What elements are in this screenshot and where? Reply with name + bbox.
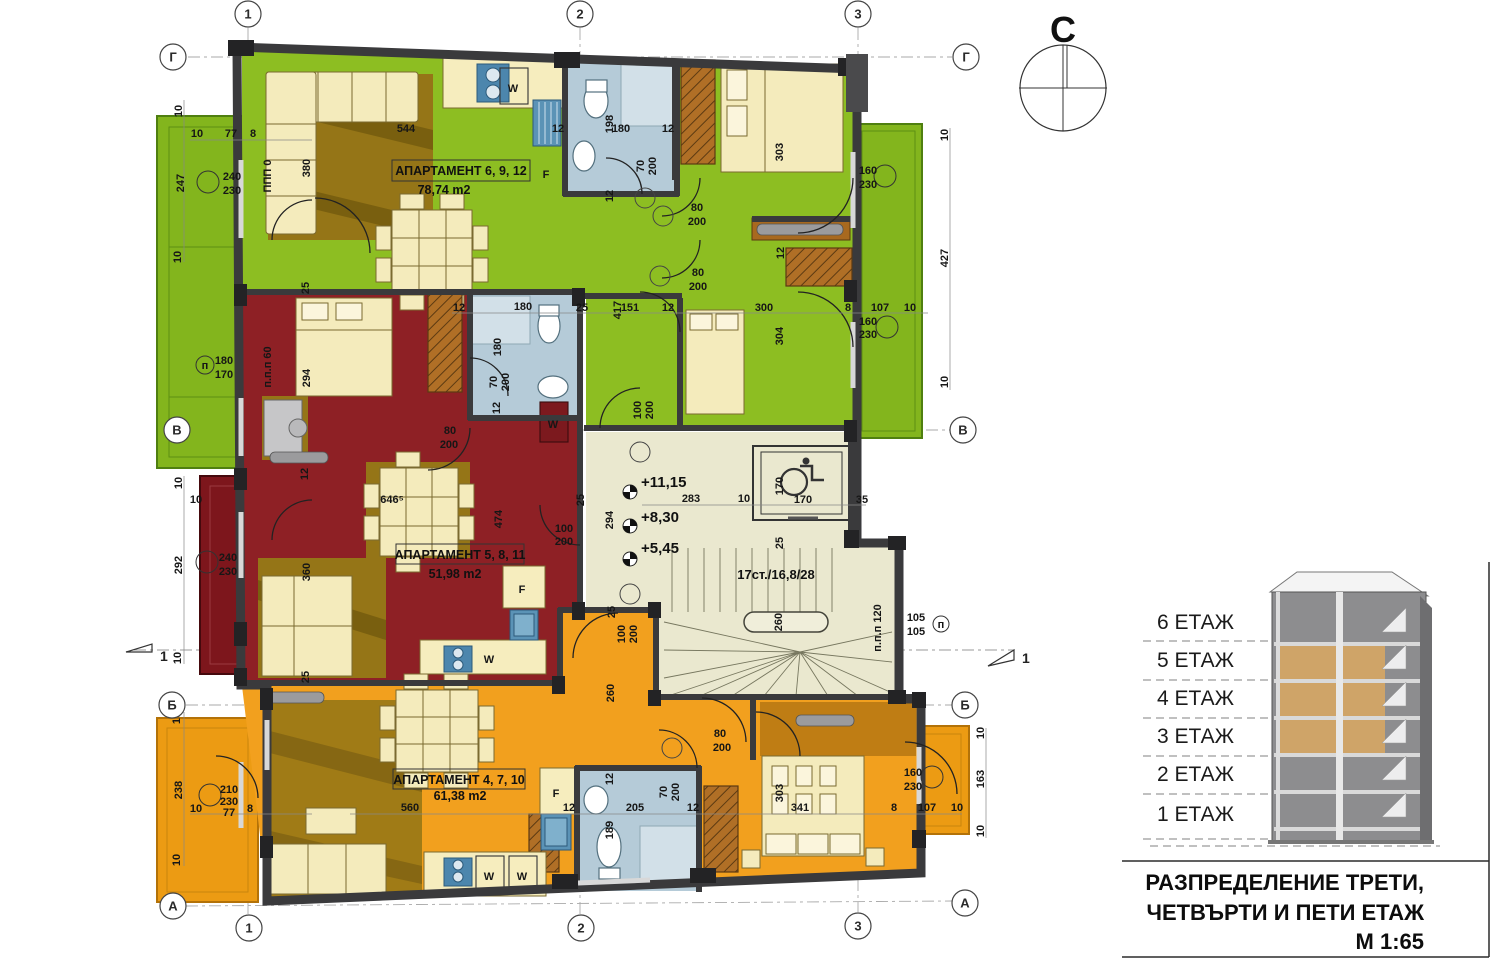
appliance-label: W — [484, 654, 495, 666]
dim-label: 294 — [301, 368, 313, 387]
dim-label: 200 — [644, 401, 656, 419]
dim-label: 10 — [975, 727, 987, 739]
wardrobe — [681, 60, 715, 164]
building-section-drawing — [1268, 572, 1434, 844]
dim-label: 25 — [606, 606, 618, 618]
dim-label: 560 — [401, 802, 419, 814]
sofa — [270, 844, 386, 894]
dim-label: 25 — [300, 671, 312, 683]
dim-label: 25 — [300, 282, 312, 294]
dim-label: 170 — [215, 369, 233, 381]
dim-label: 10 — [173, 105, 185, 117]
apartment-green-area-label: 78,74 m2 — [418, 183, 471, 197]
dim-label: 10 — [939, 129, 951, 141]
dim-label: 77 — [223, 807, 235, 819]
dim-label: 8 — [247, 803, 253, 815]
coffee-table — [306, 808, 356, 834]
dim-label: 10 — [171, 854, 183, 866]
dim-label: 12 — [662, 123, 674, 135]
dim-label: 12 — [299, 468, 311, 480]
dim-label: 170 — [794, 494, 812, 506]
apartment-red-area-label: 51,98 m2 — [429, 567, 482, 581]
dim-label: 210 — [220, 784, 238, 796]
dim-label: 12 — [491, 402, 503, 414]
dim-label: 12 — [604, 190, 616, 202]
grid-axis-label: А — [168, 899, 178, 914]
dim-label: 100 — [555, 523, 573, 535]
dim-label: 8 — [845, 302, 851, 314]
section-marker-left: 1 — [160, 648, 168, 664]
drawing-scale: М 1:65 — [1356, 929, 1424, 954]
drawing-title-line1: РАЗПРЕДЕЛЕНИЕ ТРЕТИ, — [1145, 870, 1424, 895]
dim-label: 230 — [859, 329, 877, 341]
grid-axis-label: А — [960, 896, 970, 911]
apartment-orange-area-label: 61,38 m2 — [434, 789, 487, 803]
appliance-label: F — [553, 788, 560, 800]
dining-table — [392, 210, 472, 294]
dim-label: 247 — [175, 174, 187, 192]
dim-label: 300 — [755, 302, 773, 314]
dim-label: 10 — [939, 376, 951, 388]
dim-label: 10 — [738, 493, 750, 505]
dim-label: 292 — [173, 556, 185, 574]
dim-label: 180 — [612, 123, 630, 135]
floor-legend-label: 6 ЕТАЖ — [1157, 611, 1235, 634]
dim-label: 189 — [604, 821, 616, 839]
dim-label: 260 — [605, 684, 617, 702]
dim-label: 163 — [975, 770, 987, 788]
floor-legend-label: 4 ЕТАЖ — [1157, 687, 1235, 710]
dim-label: 70 — [488, 376, 500, 388]
dim-label: 427 — [939, 249, 951, 267]
dim-label: 107 — [918, 802, 936, 814]
dim-label: 474 — [493, 509, 505, 528]
dim-label: 180 — [215, 355, 233, 367]
grid-axis-label: 2 — [576, 7, 583, 22]
dim-label: 8 — [891, 802, 897, 814]
grid-axis-label: Б — [960, 698, 969, 713]
dim-label: 10 — [190, 494, 202, 506]
dim-label: 100 — [616, 625, 628, 643]
grid-axis-label: 3 — [854, 7, 861, 22]
grid-axis-label: 3 — [854, 919, 861, 934]
dim-label: 8 — [250, 128, 256, 140]
sink-icon — [584, 786, 608, 814]
dim-label: 10 — [191, 128, 203, 140]
dim-label: 200 — [440, 439, 458, 451]
compass: С — [1019, 9, 1107, 131]
dim-label: 10 — [172, 251, 184, 263]
nightstand — [742, 850, 760, 868]
dim-label: 70 — [658, 786, 670, 798]
dim-label: 240 — [223, 171, 241, 183]
nightstand — [866, 848, 884, 866]
dim-label: 10 — [904, 302, 916, 314]
dim-label: 180 — [492, 338, 504, 356]
dim-label: 294 — [604, 510, 616, 529]
dim-label: 205 — [626, 802, 644, 814]
dim-label: 180 — [514, 301, 532, 313]
grid-axis-label: В — [172, 423, 181, 438]
grid-axis-label: Г — [962, 50, 970, 65]
dim-label: 200 — [689, 281, 707, 293]
dim-label: п.п.п 120 — [872, 604, 884, 651]
dim-label: 10 — [951, 802, 963, 814]
dim-label: 107 — [871, 302, 889, 314]
apartment-orange-name: АПАРТАМЕНТ 4, 7, 10 — [393, 773, 525, 787]
level-label: +5,45 — [641, 540, 679, 557]
dim-label: 25 — [774, 537, 786, 549]
dim-label: 240 — [219, 552, 237, 564]
dim-label: 544 — [397, 123, 416, 135]
wardrobe — [786, 248, 852, 286]
dim-label: 283 — [682, 493, 700, 505]
dining-table — [380, 468, 458, 556]
dim-label: 80 — [691, 202, 703, 214]
radiator-icon — [266, 692, 324, 703]
dim-label: ППП 0 — [262, 160, 274, 193]
dim-label: 80 — [692, 267, 704, 279]
architectural-drawing-sheet: 1 1 АПАРТАМЕНТ 6, 9, 12 78,74 m2 АПАРТАМ… — [0, 0, 1500, 973]
stair-handrail — [744, 612, 828, 632]
appliance-label: W — [517, 871, 528, 883]
grid-axis-label: Б — [167, 698, 176, 713]
floor-legend-label: 2 ЕТАЖ — [1157, 763, 1235, 786]
dim-label: 360 — [301, 563, 313, 581]
dim-label: 105 — [907, 626, 925, 638]
elevator-shaft — [753, 446, 850, 520]
appliance-label: W — [484, 871, 495, 883]
shower-green — [621, 64, 676, 126]
dim-label: п — [938, 619, 945, 631]
level-markers — [623, 485, 637, 566]
appliance-label: W — [508, 83, 519, 95]
dim-label: 170 — [774, 477, 786, 495]
dim-label: 77 — [225, 128, 237, 140]
grid-axis-label: В — [958, 423, 967, 438]
north-label: С — [1050, 9, 1076, 50]
dim-label: 80 — [714, 728, 726, 740]
stair-spec-label: 17ст./16,8/28 — [737, 567, 815, 582]
chair — [289, 419, 307, 437]
sink-icon — [538, 376, 568, 398]
dim-label: 200 — [688, 216, 706, 228]
dim-label: 341 — [791, 802, 809, 814]
dim-label: 12 — [662, 302, 674, 314]
highlighted-floor-3 — [1278, 720, 1385, 753]
level-label: +11,15 — [641, 474, 686, 491]
dim-label: 230 — [904, 781, 922, 793]
dim-label: 230 — [223, 185, 241, 197]
radiator-icon — [270, 452, 328, 463]
dim-label: 12 — [775, 247, 787, 259]
section-marker-right: 1 — [1022, 650, 1030, 666]
grid-axis-label: Г — [169, 50, 177, 65]
dim-label: 304 — [774, 326, 786, 345]
appliance-label: F — [543, 169, 550, 181]
grid-axis-label: 2 — [577, 921, 584, 936]
dim-label: 100 — [632, 401, 644, 419]
dim-label: 10 — [190, 803, 202, 815]
dim-label: 200 — [628, 625, 640, 643]
dim-label: 12 — [563, 802, 575, 814]
grid-axis-label: 1 — [244, 7, 251, 22]
floor-legend-label: 1 ЕТАЖ — [1157, 803, 1235, 826]
floor-legend-label: 5 ЕТАЖ — [1157, 649, 1235, 672]
dim-label: 151 — [621, 302, 639, 314]
dim-label: 160 — [904, 767, 922, 779]
dim-label: 12 — [687, 802, 699, 814]
dim-label: 10 — [172, 652, 184, 664]
floor-legend-label: 3 ЕТАЖ — [1157, 725, 1235, 748]
dim-label: 105 — [907, 612, 925, 624]
dim-label: 238 — [173, 781, 185, 799]
dim-label: 160 — [859, 165, 877, 177]
dim-label: 230 — [219, 566, 237, 578]
dim-label: п.п.п 60 — [262, 346, 274, 387]
dim-label: 12 — [453, 302, 465, 314]
highlighted-floor-5 — [1278, 646, 1385, 679]
dim-label: 260 — [773, 613, 785, 631]
dim-label: 200 — [670, 783, 682, 801]
sink-icon — [573, 141, 595, 171]
wardrobe — [704, 786, 738, 872]
dim-label: 80 — [444, 425, 456, 437]
dim-label: 200 — [713, 742, 731, 754]
appliance-label: W — [548, 419, 559, 431]
dim-label: п — [202, 360, 209, 372]
dim-label: 200 — [500, 373, 512, 391]
radiator-icon — [796, 715, 854, 726]
drawing-title-line2: ЧЕТВЪРТИ И ПЕТИ ЕТАЖ — [1146, 900, 1424, 925]
dim-label: 35 — [856, 494, 868, 506]
dim-label: 303 — [774, 784, 786, 802]
elevator — [753, 446, 850, 520]
dim-label: 160 — [859, 316, 877, 328]
apartment-red-name: АПАРТАМЕНТ 5, 8, 11 — [395, 548, 526, 562]
dim-label: 25 — [576, 302, 588, 314]
dim-label: 230 — [859, 179, 877, 191]
dim-label: 10 — [173, 477, 185, 489]
dim-label: 12 — [604, 773, 616, 785]
dining-table — [396, 690, 478, 772]
highlighted-floor-4 — [1278, 683, 1385, 716]
shower-orange — [640, 826, 698, 882]
floor-legend: 6 ЕТАЖ5 ЕТАЖ4 ЕТАЖ3 ЕТАЖ2 ЕТАЖ1 ЕТАЖ — [1143, 572, 1440, 846]
dim-label: 70 — [635, 160, 647, 172]
dim-label: 12 — [552, 123, 564, 135]
grid-axis-label: 1 — [245, 921, 252, 936]
dim-label: 10 — [975, 825, 987, 837]
apartment-green-name: АПАРТАМЕНТ 6, 9, 12 — [395, 164, 527, 178]
appliance-label: F — [519, 584, 526, 596]
dim-label: 200 — [555, 536, 573, 548]
dim-label: 646⁵ — [380, 494, 404, 506]
dim-label: 303 — [774, 143, 786, 161]
floor-plan-canvas: 1 1 АПАРТАМЕНТ 6, 9, 12 78,74 m2 АПАРТАМ… — [0, 0, 1500, 973]
level-label: +8,30 — [641, 509, 679, 526]
dim-label: 200 — [647, 157, 659, 175]
dim-label: 25 — [575, 494, 587, 506]
dim-label: 380 — [301, 159, 313, 177]
